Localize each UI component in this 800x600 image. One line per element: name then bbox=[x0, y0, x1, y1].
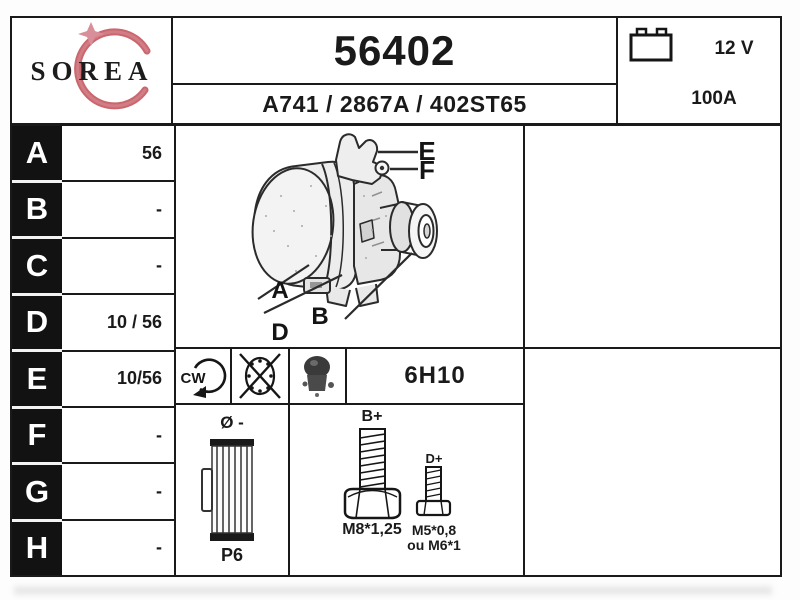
logo-text: SOREA bbox=[30, 56, 153, 86]
connector-photo-cell bbox=[290, 349, 347, 403]
cw-label: CW bbox=[181, 370, 207, 387]
terminal-bolts-cell: B+ M8*1,25 D+ M5*0,8 ou M6*1 bbox=[290, 405, 523, 575]
row-value-a: 56 bbox=[62, 126, 174, 180]
row-letter-d: D bbox=[12, 293, 62, 350]
dimension-letter-column: A B C D E F G H bbox=[12, 126, 62, 575]
star-icon bbox=[78, 22, 104, 46]
pulley-diameter-label: Ø - bbox=[176, 413, 288, 433]
pulley-type-label: P6 bbox=[176, 545, 288, 566]
spec-sheet: SOREA 56402 A741 / 2867A / 402ST65 12 V … bbox=[10, 16, 782, 577]
d-terminal-thread: M5*0,8 bbox=[389, 522, 479, 538]
callout-d-label: D bbox=[271, 319, 288, 346]
d-terminal-label: D+ bbox=[409, 451, 459, 466]
callout-f-label: F bbox=[419, 155, 435, 185]
dimension-value-column: 56 - - 10 / 56 10/56 - - - bbox=[62, 126, 176, 575]
row-value-d: 10 / 56 bbox=[62, 293, 174, 349]
row-value-b: - bbox=[62, 180, 174, 236]
d-terminal-thread-alt: ou M6*1 bbox=[389, 537, 479, 553]
callout-a-label: A bbox=[271, 277, 288, 304]
no-pulley-cell bbox=[232, 349, 290, 403]
row-letter-b: B bbox=[12, 180, 62, 237]
b-terminal-label: B+ bbox=[347, 408, 397, 426]
header: SOREA 56402 A741 / 2867A / 402ST65 12 V … bbox=[12, 18, 780, 126]
row-letter-a: A bbox=[12, 126, 62, 180]
amperage-value: 100A bbox=[674, 88, 754, 110]
connector-plug-icon bbox=[295, 351, 341, 401]
symbol-row: CW bbox=[176, 349, 523, 405]
row-value-f: - bbox=[62, 406, 174, 462]
notes-cell-bottom bbox=[525, 349, 780, 575]
right-column bbox=[525, 126, 780, 575]
notes-cell-top bbox=[525, 126, 780, 349]
row-letter-e: E bbox=[12, 349, 62, 406]
electrical-specs: 12 V 100A bbox=[618, 18, 780, 123]
part-number: 56402 bbox=[173, 18, 616, 85]
alternator-line-art-icon: E F A B D bbox=[176, 126, 523, 347]
row-value-g: - bbox=[62, 462, 174, 518]
pulley-crossed-out-icon bbox=[232, 349, 288, 403]
row-letter-f: F bbox=[12, 406, 62, 463]
bottom-row: Ø - P6 bbox=[176, 405, 523, 575]
callout-b-label: B bbox=[311, 303, 328, 330]
voltage-value: 12 V bbox=[702, 38, 766, 60]
battery-icon bbox=[628, 26, 674, 64]
row-value-e: 10/56 bbox=[62, 350, 174, 406]
row-value-c: - bbox=[62, 237, 174, 293]
page-scan-shadow bbox=[14, 586, 772, 595]
row-letter-c: C bbox=[12, 236, 62, 293]
cross-references: A741 / 2867A / 402ST65 bbox=[173, 85, 616, 123]
title-block: 56402 A741 / 2867A / 402ST65 bbox=[173, 18, 618, 123]
sorea-logo-icon: SOREA bbox=[12, 18, 173, 123]
rotation-direction-cell: CW bbox=[176, 349, 232, 403]
row-letter-h: H bbox=[12, 519, 62, 576]
brand-logo: SOREA bbox=[12, 18, 173, 123]
pulley-spec-cell: Ø - P6 bbox=[176, 405, 290, 575]
main-column: E F A B D CW bbox=[176, 126, 525, 575]
row-value-h: - bbox=[62, 519, 174, 575]
clockwise-rotation-icon: CW bbox=[177, 349, 229, 403]
sheet-body: A B C D E F G H 56 - - 10 / 56 10/56 - -… bbox=[12, 126, 780, 575]
housing-code: 6H10 bbox=[347, 349, 523, 403]
ribbed-pulley-icon bbox=[200, 437, 264, 543]
row-letter-g: G bbox=[12, 462, 62, 519]
alternator-drawing: E F A B D bbox=[176, 126, 523, 349]
